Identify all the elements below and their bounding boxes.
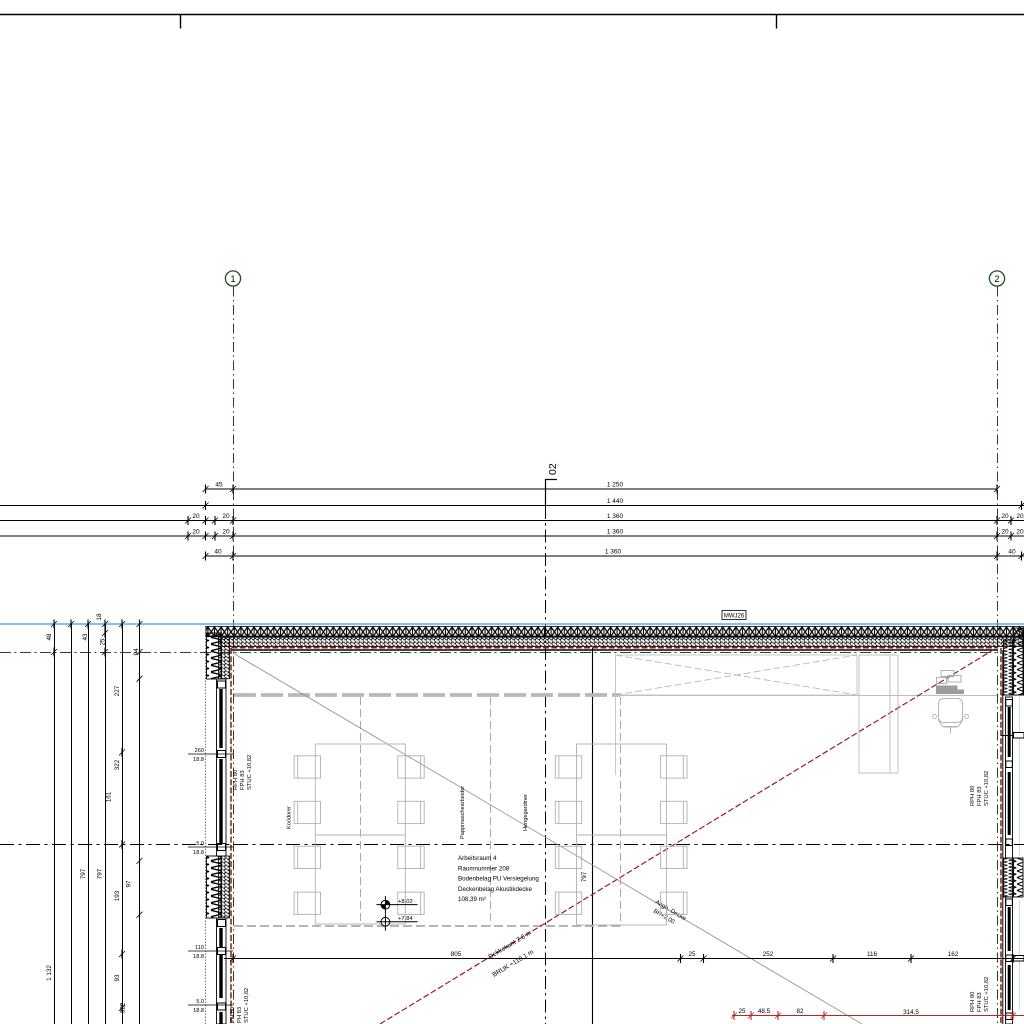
svg-text:43: 43 [82, 633, 89, 641]
svg-text:322: 322 [114, 759, 121, 770]
svg-text:1 360: 1 360 [607, 529, 624, 536]
svg-text:25: 25 [738, 1008, 746, 1015]
svg-text:227: 227 [114, 685, 121, 696]
svg-text:18.8: 18.8 [193, 1008, 204, 1014]
svg-text:Koridorer: Koridorer [287, 806, 293, 829]
svg-text:+8.02: +8.02 [398, 899, 413, 905]
svg-text:STUC +10,82: STUC +10,82 [984, 977, 990, 1012]
svg-text:Deckenbelag Akustikdecke: Deckenbelag Akustikdecke [458, 886, 533, 893]
svg-text:FPH 83: FPH 83 [977, 786, 983, 806]
svg-text:RPH 80: RPH 80 [970, 992, 976, 1012]
svg-text:18.8: 18.8 [193, 954, 204, 960]
svg-text:18: 18 [96, 613, 103, 621]
svg-text:STUC +10,82: STUC +10,82 [244, 988, 250, 1023]
svg-text:1 132: 1 132 [46, 965, 53, 981]
svg-text:1 360: 1 360 [607, 513, 624, 520]
svg-text:82: 82 [796, 1008, 804, 1015]
svg-text:40: 40 [1008, 549, 1016, 556]
svg-text:20: 20 [1001, 529, 1009, 536]
svg-text:97: 97 [126, 880, 133, 888]
svg-text:+7.84: +7.84 [398, 916, 413, 922]
svg-text:1 360: 1 360 [605, 549, 622, 556]
svg-text:1 440: 1 440 [607, 498, 624, 505]
svg-text:PH 83: PH 83 [237, 1007, 243, 1023]
svg-text:PH 80: PH 80 [230, 1007, 236, 1023]
svg-text:25: 25 [688, 951, 696, 958]
svg-text:18.8: 18.8 [193, 757, 204, 763]
svg-text:314.5: 314.5 [903, 1009, 919, 1016]
svg-text:94: 94 [133, 648, 140, 656]
svg-text:193: 193 [114, 890, 121, 901]
svg-text:20: 20 [222, 513, 230, 520]
svg-text:Raumnummer 208: Raumnummer 208 [458, 865, 510, 872]
svg-text:805: 805 [451, 951, 462, 958]
svg-text:5.0: 5.0 [196, 999, 204, 1005]
svg-text:18.8: 18.8 [193, 850, 204, 856]
svg-text:20: 20 [192, 529, 200, 536]
svg-text:48.5: 48.5 [758, 1008, 771, 1015]
svg-text:108,39 m²: 108,39 m² [458, 896, 486, 903]
svg-text:2: 2 [994, 274, 999, 284]
svg-text:260: 260 [195, 748, 204, 754]
svg-text:RPH 80: RPH 80 [970, 786, 976, 806]
svg-text:252: 252 [763, 951, 774, 958]
svg-text:45: 45 [215, 482, 223, 489]
svg-text:Pappmaschearbeider: Pappmaschearbeider [460, 786, 466, 839]
svg-text:110: 110 [195, 945, 204, 951]
svg-text:20: 20 [1016, 529, 1024, 536]
svg-text:93: 93 [114, 974, 121, 982]
svg-text:1 250: 1 250 [607, 482, 624, 489]
svg-text:RPH 80: RPH 80 [233, 770, 239, 790]
svg-text:Hengegardiner: Hengegardiner [523, 794, 529, 831]
svg-text:Bodenbelag PU Versiegelung: Bodenbelag PU Versiegelung [458, 876, 539, 883]
svg-text:20: 20 [192, 513, 200, 520]
svg-text:797: 797 [97, 868, 104, 879]
svg-text:40: 40 [214, 549, 222, 556]
svg-text:Arbeitsraum 4: Arbeitsraum 4 [458, 855, 497, 862]
svg-text:48: 48 [46, 633, 53, 641]
svg-text:STUC +10,82: STUC +10,82 [247, 755, 253, 790]
svg-text:20: 20 [1001, 513, 1009, 520]
svg-text:FPH 83: FPH 83 [977, 992, 983, 1012]
svg-text:20: 20 [222, 529, 230, 536]
svg-text:1: 1 [230, 274, 235, 284]
svg-text:797: 797 [80, 868, 87, 879]
svg-text:116: 116 [867, 951, 878, 958]
svg-text:25: 25 [100, 638, 107, 646]
svg-text:161: 161 [106, 791, 113, 802]
svg-text:322: 322 [120, 1002, 127, 1013]
svg-text:162: 162 [948, 951, 959, 958]
svg-text:STUC +10,82: STUC +10,82 [984, 771, 990, 806]
svg-text:797: 797 [581, 871, 588, 882]
svg-text:FPH 83: FPH 83 [240, 770, 246, 790]
svg-text:02: 02 [547, 463, 559, 475]
svg-text:MWJ26: MWJ26 [724, 614, 745, 620]
svg-text:20: 20 [1016, 513, 1024, 520]
